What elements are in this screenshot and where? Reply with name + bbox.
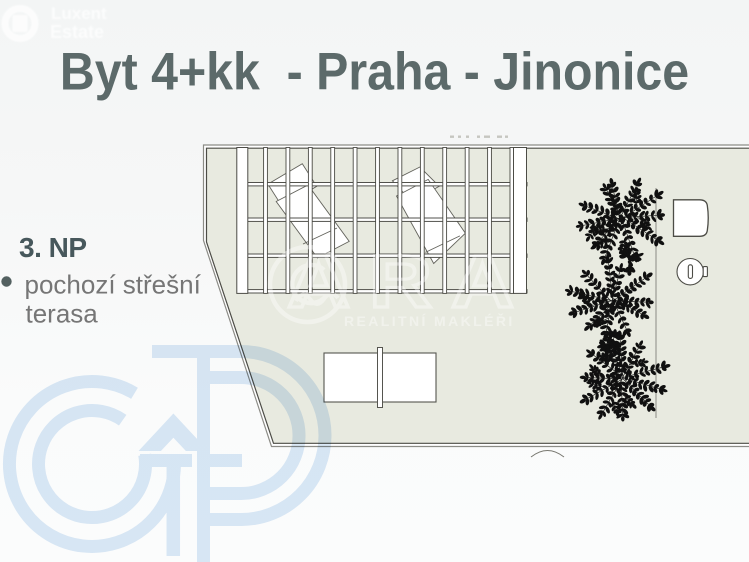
svg-text:REALITNÍ MAKLÉŘI: REALITNÍ MAKLÉŘI [344, 312, 515, 329]
svg-text:3. NP: 3. NP [19, 232, 87, 263]
svg-text:ARA: ARA [287, 241, 533, 323]
svg-text:pochozí střešní: pochozí střešní [25, 270, 202, 300]
svg-text:Byt 4+kk - Praha - Jinonice: Byt 4+kk - Praha - Jinonice [60, 41, 689, 101]
svg-text:terasa: terasa [26, 299, 99, 329]
svg-text:Estate: Estate [50, 22, 104, 42]
svg-text:Luxent: Luxent [51, 4, 107, 23]
